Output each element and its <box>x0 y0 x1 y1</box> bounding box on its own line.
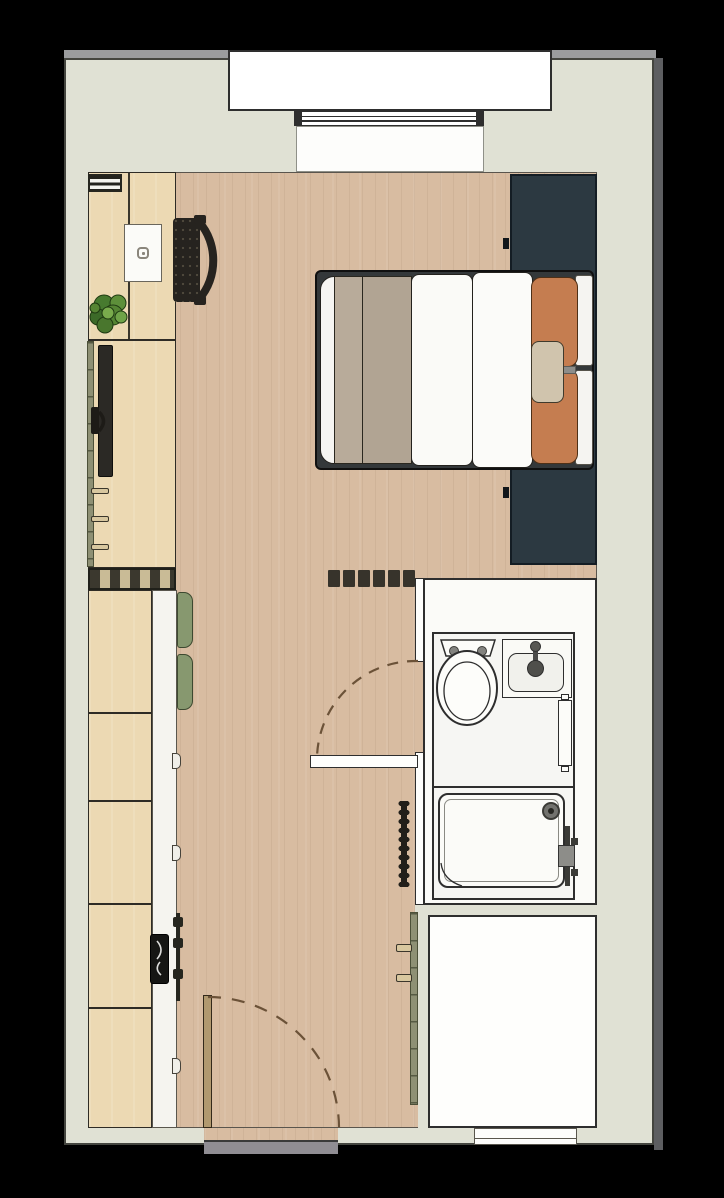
partition-strip <box>410 912 418 1105</box>
faucet-knob <box>173 938 183 948</box>
radiator-cap <box>561 694 569 700</box>
wardrobe-handle <box>503 487 509 498</box>
window-jamb-right <box>476 112 483 125</box>
cabinet-seam <box>89 903 151 905</box>
office-chair-seat <box>173 218 200 302</box>
faucet-cap <box>530 641 541 652</box>
window-jamb-left <box>295 112 302 125</box>
laptop-logo <box>137 247 149 259</box>
peg-rail <box>397 799 411 889</box>
counter-handle <box>172 753 181 769</box>
duvet-fold <box>411 274 473 466</box>
rail-dash <box>388 570 400 587</box>
wall-tv <box>98 345 113 477</box>
shower-valve-nub <box>571 869 578 876</box>
rail-dash <box>343 570 355 587</box>
glazing-line <box>302 116 476 118</box>
bathroom-door-leaf <box>310 755 418 768</box>
entrance-door-leaf <box>203 995 212 1128</box>
balcony-bay <box>228 50 552 111</box>
laptop <box>124 224 162 282</box>
faucet-knob <box>173 917 183 927</box>
duvet-fold <box>472 272 533 468</box>
shower-valve-box <box>558 845 575 867</box>
stool <box>177 592 193 648</box>
cabinet-seam <box>89 800 151 802</box>
radiator <box>88 568 176 590</box>
entrance-threshold <box>204 1140 338 1154</box>
counter-handle <box>172 1058 181 1074</box>
rail-dash <box>328 570 340 587</box>
shower-drain <box>542 802 560 820</box>
wall-patch <box>415 905 597 915</box>
glazing-line <box>302 120 476 122</box>
shower-valve-nub <box>571 838 578 845</box>
bathroom-partition <box>432 786 575 788</box>
drawer-handle <box>91 544 109 550</box>
lumbar-cushion <box>531 341 564 403</box>
cabinet-seam <box>89 712 151 714</box>
bathroom-wall-jamb <box>415 752 424 905</box>
window-glazing <box>294 111 484 126</box>
blanket-band <box>334 276 363 464</box>
rail-dash <box>358 570 370 587</box>
cabinet-seam <box>89 1007 151 1009</box>
radiator-cap <box>561 766 569 772</box>
right-wall-edge <box>654 58 663 1150</box>
cable-channel <box>87 341 94 567</box>
wall-patch <box>418 915 428 1128</box>
secondary-room <box>428 915 597 1128</box>
secondary-threshold <box>474 1128 577 1145</box>
stool <box>177 654 193 710</box>
rail-dash <box>403 570 415 587</box>
faucet-knob <box>173 969 183 979</box>
kitchen-sink <box>150 934 169 984</box>
partition-handle <box>396 974 412 982</box>
wardrobe-handle <box>503 238 509 249</box>
blanket-band <box>362 276 412 464</box>
drawer-handle <box>91 516 109 522</box>
towel-radiator <box>558 700 572 766</box>
rail-dash <box>373 570 385 587</box>
window-sill <box>296 126 484 172</box>
vent-grille <box>88 174 122 192</box>
floor-plan <box>0 0 724 1198</box>
clothes-rail <box>328 570 418 587</box>
drawer-handle <box>91 488 109 494</box>
partition-handle <box>396 944 412 952</box>
bathroom-wall-jamb <box>415 578 424 662</box>
kitchen-cabinets <box>88 590 152 1128</box>
counter-handle <box>172 845 181 861</box>
faucet-base <box>527 660 544 677</box>
